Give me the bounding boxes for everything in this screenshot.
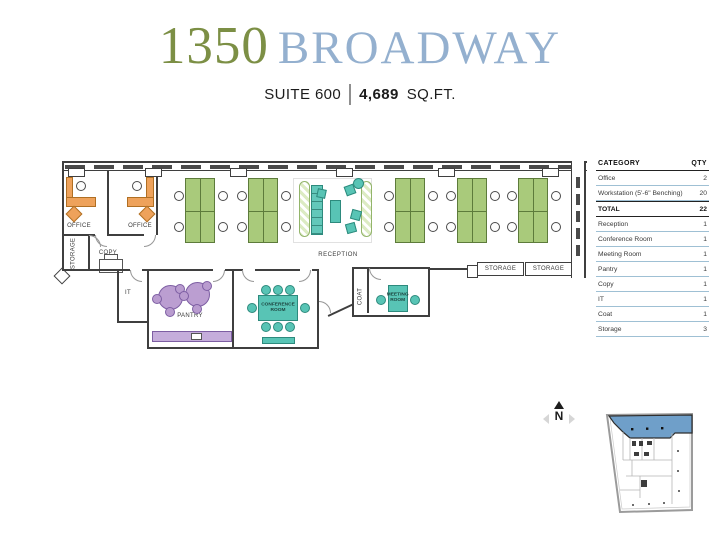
chair <box>384 191 394 201</box>
conference-label: CONFERENCE ROOM <box>261 302 295 314</box>
area-unit: SQ.FT. <box>407 86 456 103</box>
chair <box>76 181 86 191</box>
table-row: Office2 <box>596 171 709 186</box>
wall <box>147 269 149 348</box>
chair <box>507 191 517 201</box>
chair <box>247 303 257 313</box>
chair <box>132 181 142 191</box>
chair <box>202 281 212 291</box>
chair <box>285 285 295 295</box>
table-body: Office2Workstation (5'-6" Benching)20TOT… <box>596 171 709 337</box>
room-label-coat: COAT <box>358 279 365 313</box>
chair <box>165 307 175 317</box>
wall <box>352 267 429 269</box>
column <box>68 168 85 177</box>
wall <box>147 347 233 349</box>
side-table <box>316 188 327 199</box>
chair <box>261 285 271 295</box>
door-arc <box>299 270 311 282</box>
qty-header: QTY <box>691 160 707 167</box>
guest-chair <box>66 206 83 223</box>
table-row: Storage3 <box>596 322 709 337</box>
chair <box>237 222 247 232</box>
wall <box>62 161 64 271</box>
meeting-table: MEETING ROOM <box>388 285 408 312</box>
north-arrow: N <box>547 401 571 435</box>
workstation-bench <box>248 178 278 243</box>
wall <box>117 321 148 323</box>
building-key-plan <box>584 410 706 522</box>
room-label-it: IT <box>118 290 138 297</box>
table-row: Copy1 <box>596 277 709 292</box>
planter <box>361 181 372 237</box>
door-arc <box>369 268 381 280</box>
column <box>336 168 353 177</box>
wall <box>62 269 130 271</box>
subtitle: SUITE 600 4,689 SQ.FT. <box>0 84 720 105</box>
wall <box>117 269 119 322</box>
page-title: 1350BROADWAY <box>0 20 720 73</box>
wall <box>107 171 109 235</box>
chair <box>507 222 517 232</box>
room-label-reception: RECEPTION <box>312 252 364 259</box>
chair <box>285 322 295 332</box>
guest-chair <box>139 206 156 223</box>
area-value: 4,689 <box>359 86 399 103</box>
qty-cell: 1 <box>703 311 707 318</box>
chair <box>174 222 184 232</box>
chair <box>152 294 162 304</box>
room-label-copy: COPY <box>93 250 123 257</box>
column <box>542 168 559 177</box>
wall <box>107 234 144 236</box>
wall <box>328 303 354 316</box>
qty-cell: 1 <box>703 221 707 228</box>
north-label: N <box>547 409 571 423</box>
credenza <box>262 337 295 344</box>
qty-cell: 22 <box>700 206 707 213</box>
wall <box>428 268 468 270</box>
qty-cell: 3 <box>703 326 707 333</box>
sink <box>191 333 202 340</box>
chair <box>273 322 283 332</box>
storage-label: STORAGE <box>533 266 564 272</box>
table-row: Workstation (5'-6" Benching)20 <box>596 186 709 201</box>
chair <box>174 191 184 201</box>
wall <box>352 315 430 317</box>
room-label-office: OFFICE <box>63 223 95 230</box>
chair <box>281 222 291 232</box>
qty-cell: 1 <box>703 281 707 288</box>
door-arc <box>130 270 142 282</box>
wall <box>352 267 354 317</box>
category-cell: Conference Room <box>598 236 652 243</box>
chair <box>446 191 456 201</box>
chair <box>551 191 561 201</box>
qty-cell: 1 <box>703 266 707 273</box>
column <box>467 265 478 278</box>
qty-cell: 2 <box>703 175 707 182</box>
chair <box>273 285 283 295</box>
conference-table: CONFERENCE ROOM <box>258 295 298 321</box>
storage-label: STORAGE <box>485 266 516 272</box>
table-row: Coat1 <box>596 307 709 322</box>
qty-cell: 1 <box>703 296 707 303</box>
chair <box>384 222 394 232</box>
chair <box>428 191 438 201</box>
chair <box>218 222 228 232</box>
floorplan: CONFERENCE ROOM MEETING ROOM STORAGE STO… <box>55 155 590 360</box>
door-arc <box>319 301 331 313</box>
flyer-page: { "header": { "number": "1350", "name": … <box>0 0 720 559</box>
door-arc <box>144 235 156 247</box>
chair <box>179 291 189 301</box>
chair <box>192 304 202 314</box>
category-header: CATEGORY <box>598 160 640 167</box>
room-label-storage: STORAGE <box>71 234 78 272</box>
category-cell: Workstation (5'-6" Benching) <box>598 190 683 197</box>
workstation-bench <box>395 178 425 243</box>
category-cell: Storage <box>598 326 621 333</box>
category-cell: Copy <box>598 281 614 288</box>
workstation-bench <box>518 178 548 243</box>
room-label-office: OFFICE <box>124 223 156 230</box>
north-triangle-icon <box>554 401 564 409</box>
category-cell: Reception <box>598 221 628 228</box>
column <box>230 168 247 177</box>
office-desk <box>66 197 96 207</box>
copier-icon <box>99 259 123 273</box>
chair <box>281 191 291 201</box>
table-row: Conference Room1 <box>596 232 709 247</box>
chair <box>410 295 420 305</box>
column <box>145 168 162 177</box>
chair <box>490 191 500 201</box>
column <box>438 168 455 177</box>
qty-cell: 20 <box>700 190 707 197</box>
table-row: IT1 <box>596 292 709 307</box>
storage-box: STORAGE <box>477 262 524 276</box>
east-chevron-icon <box>569 414 575 424</box>
category-cell: Office <box>598 175 615 182</box>
room-label-pantry: PANTRY <box>169 313 211 320</box>
wall <box>156 171 158 235</box>
category-cell: IT <box>598 296 604 303</box>
table-row: TOTAL22 <box>596 201 709 217</box>
qty-cell: 1 <box>703 236 707 243</box>
window-wall-top <box>62 161 587 171</box>
meeting-label: MEETING ROOM <box>387 293 409 305</box>
chair <box>376 295 386 305</box>
address-number: 1350 <box>159 17 269 75</box>
coffee-table <box>330 200 341 223</box>
wall <box>367 267 369 313</box>
category-cell: TOTAL <box>598 206 620 213</box>
workstation-bench <box>457 178 487 243</box>
table-row: Reception1 <box>596 217 709 232</box>
quantity-table: CATEGORY QTY Office2Workstation (5'-6" B… <box>596 158 709 337</box>
address-name: BROADWAY <box>278 22 561 74</box>
category-cell: Coat <box>598 311 612 318</box>
qty-cell: 1 <box>703 251 707 258</box>
door-arc <box>242 270 254 282</box>
suite-label: SUITE 600 <box>264 86 341 103</box>
chair <box>428 222 438 232</box>
chair <box>490 222 500 232</box>
table-row: Pantry1 <box>596 262 709 277</box>
category-cell: Pantry <box>598 266 617 273</box>
planter <box>299 181 310 237</box>
west-chevron-icon <box>543 414 549 424</box>
table-header: CATEGORY QTY <box>596 158 709 171</box>
chair <box>218 191 228 201</box>
workstation-bench <box>185 178 215 243</box>
window-wall-right <box>571 161 586 278</box>
chair <box>237 191 247 201</box>
wall <box>428 267 430 317</box>
chair <box>261 322 271 332</box>
chair <box>551 222 561 232</box>
wall <box>255 269 300 271</box>
door-arc <box>213 270 225 282</box>
office-desk <box>127 197 154 207</box>
chair <box>446 222 456 232</box>
wall <box>142 269 213 271</box>
wall <box>225 269 243 271</box>
divider <box>349 84 351 105</box>
storage-box: STORAGE <box>525 262 572 276</box>
category-cell: Meeting Room <box>598 251 642 258</box>
table-row: Meeting Room1 <box>596 247 709 262</box>
chair <box>300 303 310 313</box>
wall <box>232 347 319 349</box>
wall <box>232 269 234 349</box>
